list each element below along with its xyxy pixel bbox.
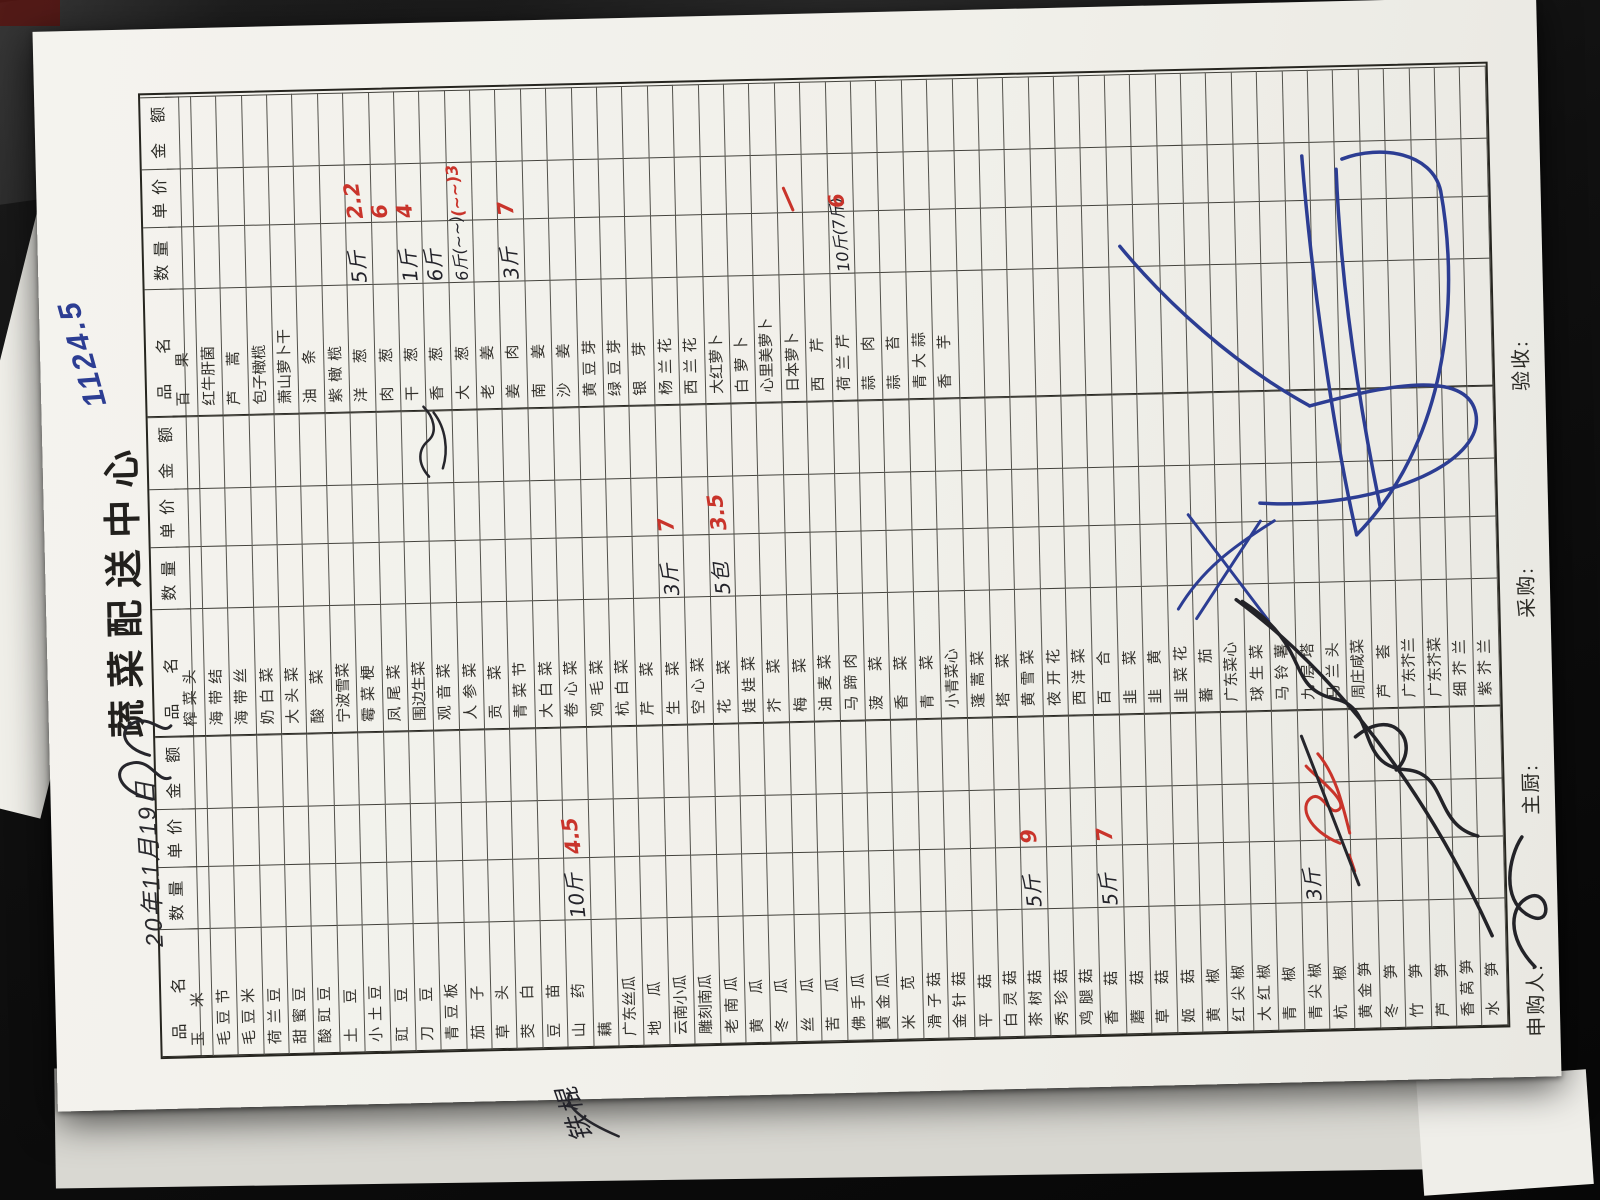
desk-red-edge	[0, 0, 60, 26]
blue-cross-marks-icon	[1176, 513, 1277, 623]
date-side-scribble-icon	[118, 720, 172, 800]
order-form-paper: 20年11月19日 蔬菜配送中心 1124.5 品名数量单价金额品名数量单价金额…	[32, 0, 1561, 1112]
stray-red-tick-icon	[783, 188, 793, 210]
qingjianjiao-black-strike-icon	[1301, 735, 1359, 886]
form-rotation-wrapper: 20年11月19日 蔬菜配送中心 1124.5 品名数量单价金额品名数量单价金额…	[37, 23, 1557, 1098]
inspector-signature-scribble-icon	[1118, 150, 1479, 540]
gancong-note-scribble-icon	[419, 406, 446, 477]
vegetable-order-form: 20年11月19日 蔬菜配送中心 1124.5 品名数量单价金额品名数量单价金额…	[37, 23, 1557, 1098]
under-sheet-corner	[1416, 1069, 1594, 1196]
handwriting-overlay	[37, 23, 1557, 1098]
requester-signature-scribble-icon	[1236, 593, 1547, 974]
